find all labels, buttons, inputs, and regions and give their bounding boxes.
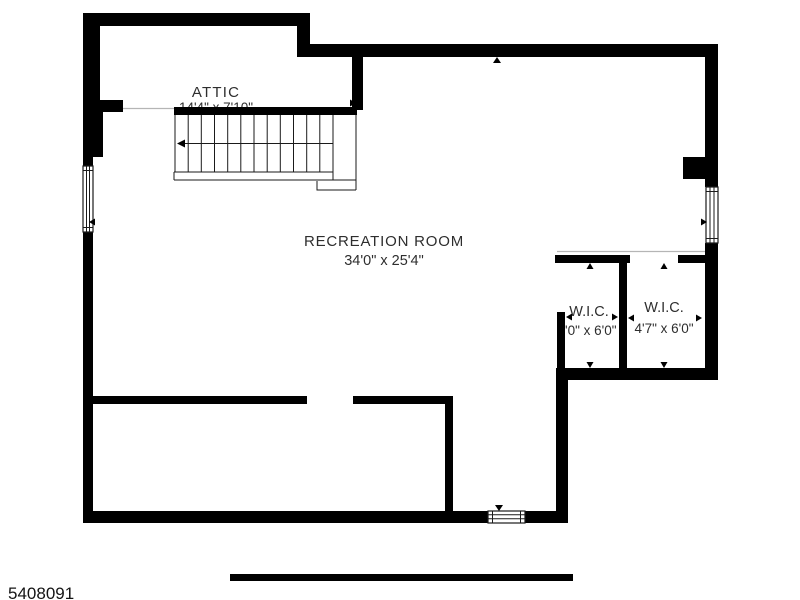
wall-wic-top-right: [678, 255, 706, 263]
window-bottom-wall-icon: [488, 511, 525, 523]
stair-landing-outline: [317, 181, 356, 190]
wall-lower-right: [556, 368, 568, 523]
wall-attic-top: [83, 13, 310, 26]
dim-arrow-wic-right-left-icon: [628, 315, 634, 322]
window-right-wall-icon: [706, 187, 718, 243]
wall-wic-left-side: [557, 312, 565, 372]
wall-left-lower: [83, 232, 93, 523]
dim-arrow-wic-right-down-icon: [661, 362, 668, 368]
wall-lower-room-top-left: [92, 396, 307, 404]
wall-bottom-right-segment: [525, 511, 568, 523]
attic-label: ATTIC: [192, 84, 240, 101]
wall-left-upper: [83, 13, 100, 103]
wall-right-lower: [705, 243, 718, 380]
stair-direction-arrow-icon: [177, 140, 185, 148]
listing-id: 5408091: [8, 584, 74, 600]
room-labels: ATTIC 14'4" x 7'10" RECREATION ROOM 34'0…: [179, 84, 694, 338]
wic-left-label: W.I.C.: [569, 304, 608, 320]
wall-wic-divider: [619, 255, 627, 377]
wall-lower-room-right: [445, 396, 453, 514]
dim-arrow-wic-right-up-icon: [661, 263, 668, 269]
wall-stair-top: [174, 107, 357, 115]
wall-bottom-left-segment: [83, 511, 488, 523]
wic-right-label: W.I.C.: [644, 300, 683, 316]
scale-bar: [230, 574, 573, 581]
wall-left-above-window: [83, 157, 93, 166]
floor-plan-drawing: ATTIC 14'4" x 7'10" RECREATION ROOM 34'0…: [0, 0, 800, 600]
dim-arrow-wic-left-right-icon: [612, 314, 618, 321]
wall-attic-bottom-left: [83, 100, 123, 112]
dim-arrow-wic-right-right-icon: [696, 315, 702, 322]
dim-arrow-recreation-up-icon: [493, 57, 501, 63]
wall-wic-bottom: [556, 368, 718, 380]
wic-right-dimensions: 4'7" x 6'0": [634, 321, 693, 336]
recreation-room-label: RECREATION ROOM: [304, 233, 464, 250]
recreation-dimensions: 34'0" x 25'4": [344, 253, 424, 269]
wall-wic-top-left: [555, 255, 630, 263]
dim-arrow-wic-left-up-icon: [587, 263, 594, 269]
interior-walls: [83, 57, 706, 514]
wic-left-dimensions: 3'0" x 6'0": [557, 323, 616, 338]
wall-lower-room-top-right: [353, 396, 453, 404]
dim-arrow-recreation-down-icon: [495, 505, 503, 511]
dimension-arrows: [89, 57, 707, 511]
footer: 5408091: [8, 574, 573, 600]
dim-arrow-wic-left-down-icon: [587, 362, 594, 368]
wall-top-main: [297, 44, 718, 57]
staircase: [174, 115, 356, 190]
floor-plan-page: ATTIC 14'4" x 7'10" RECREATION ROOM 34'0…: [0, 0, 800, 600]
wall-right-pilaster: [683, 157, 718, 179]
